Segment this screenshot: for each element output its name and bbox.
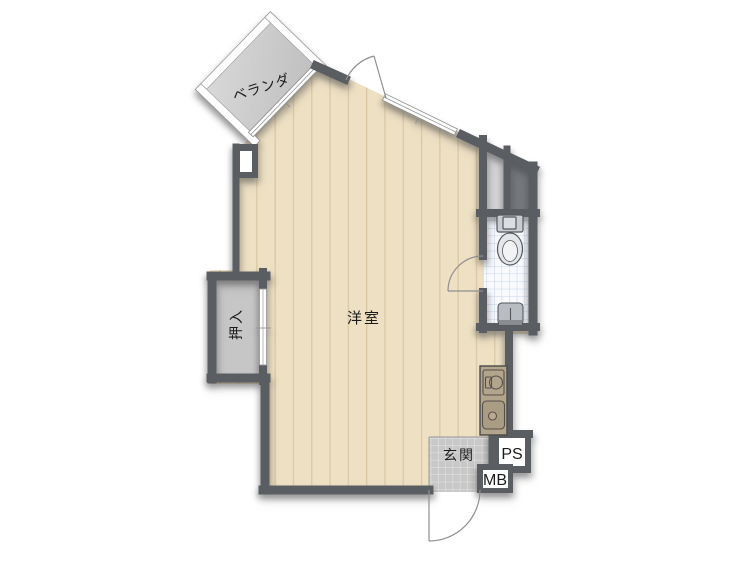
main-room-label: 洋室 — [347, 310, 381, 327]
sink-icon — [483, 401, 505, 429]
pillar — [234, 144, 258, 178]
entrance-label: 玄関 — [443, 447, 475, 463]
meter-box-label: MB — [483, 472, 507, 489]
floor-plan-svg: ベランダ 洋室 押入 玄関 PS MB — [0, 0, 743, 567]
washbasin-icon — [498, 303, 523, 325]
kitchen-counter — [480, 366, 507, 435]
closet-label: 押入 — [228, 308, 244, 340]
toilet-icon — [497, 215, 523, 265]
floorplan-canvas: ベランダ 洋室 押入 玄関 PS MB — [0, 0, 743, 567]
pipe-space-label: PS — [501, 446, 522, 463]
